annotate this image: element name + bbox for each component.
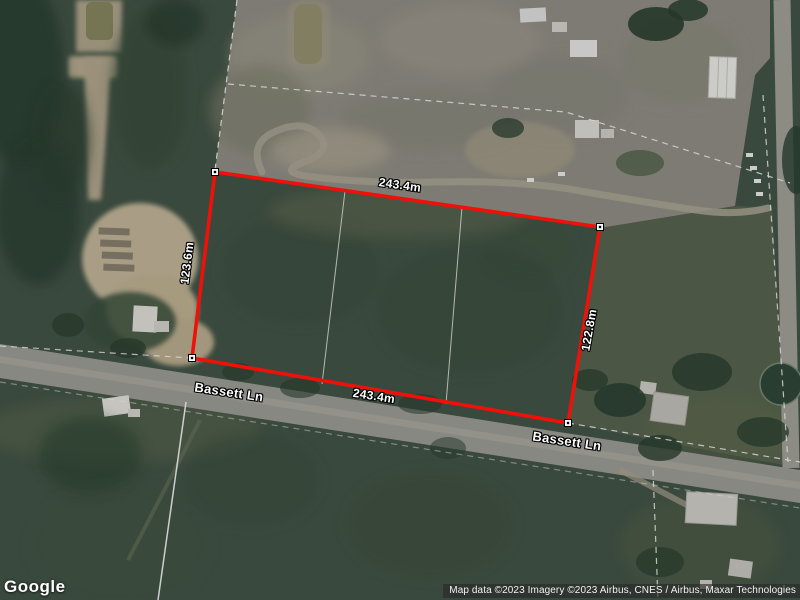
vertex-marker[interactable] [212,169,219,176]
satellite-map[interactable]: 243.4m 243.4m 123.6m 122.8m Bassett Ln B… [0,0,800,600]
image-grain [0,0,800,600]
vertex-marker[interactable] [189,355,196,362]
vertex-marker[interactable] [597,224,604,231]
satellite-imagery [0,0,800,600]
vertex-marker[interactable] [565,420,572,427]
map-attribution: Map data ©2023 Imagery ©2023 Airbus, CNE… [443,584,800,598]
google-logo[interactable]: Google [4,577,66,597]
